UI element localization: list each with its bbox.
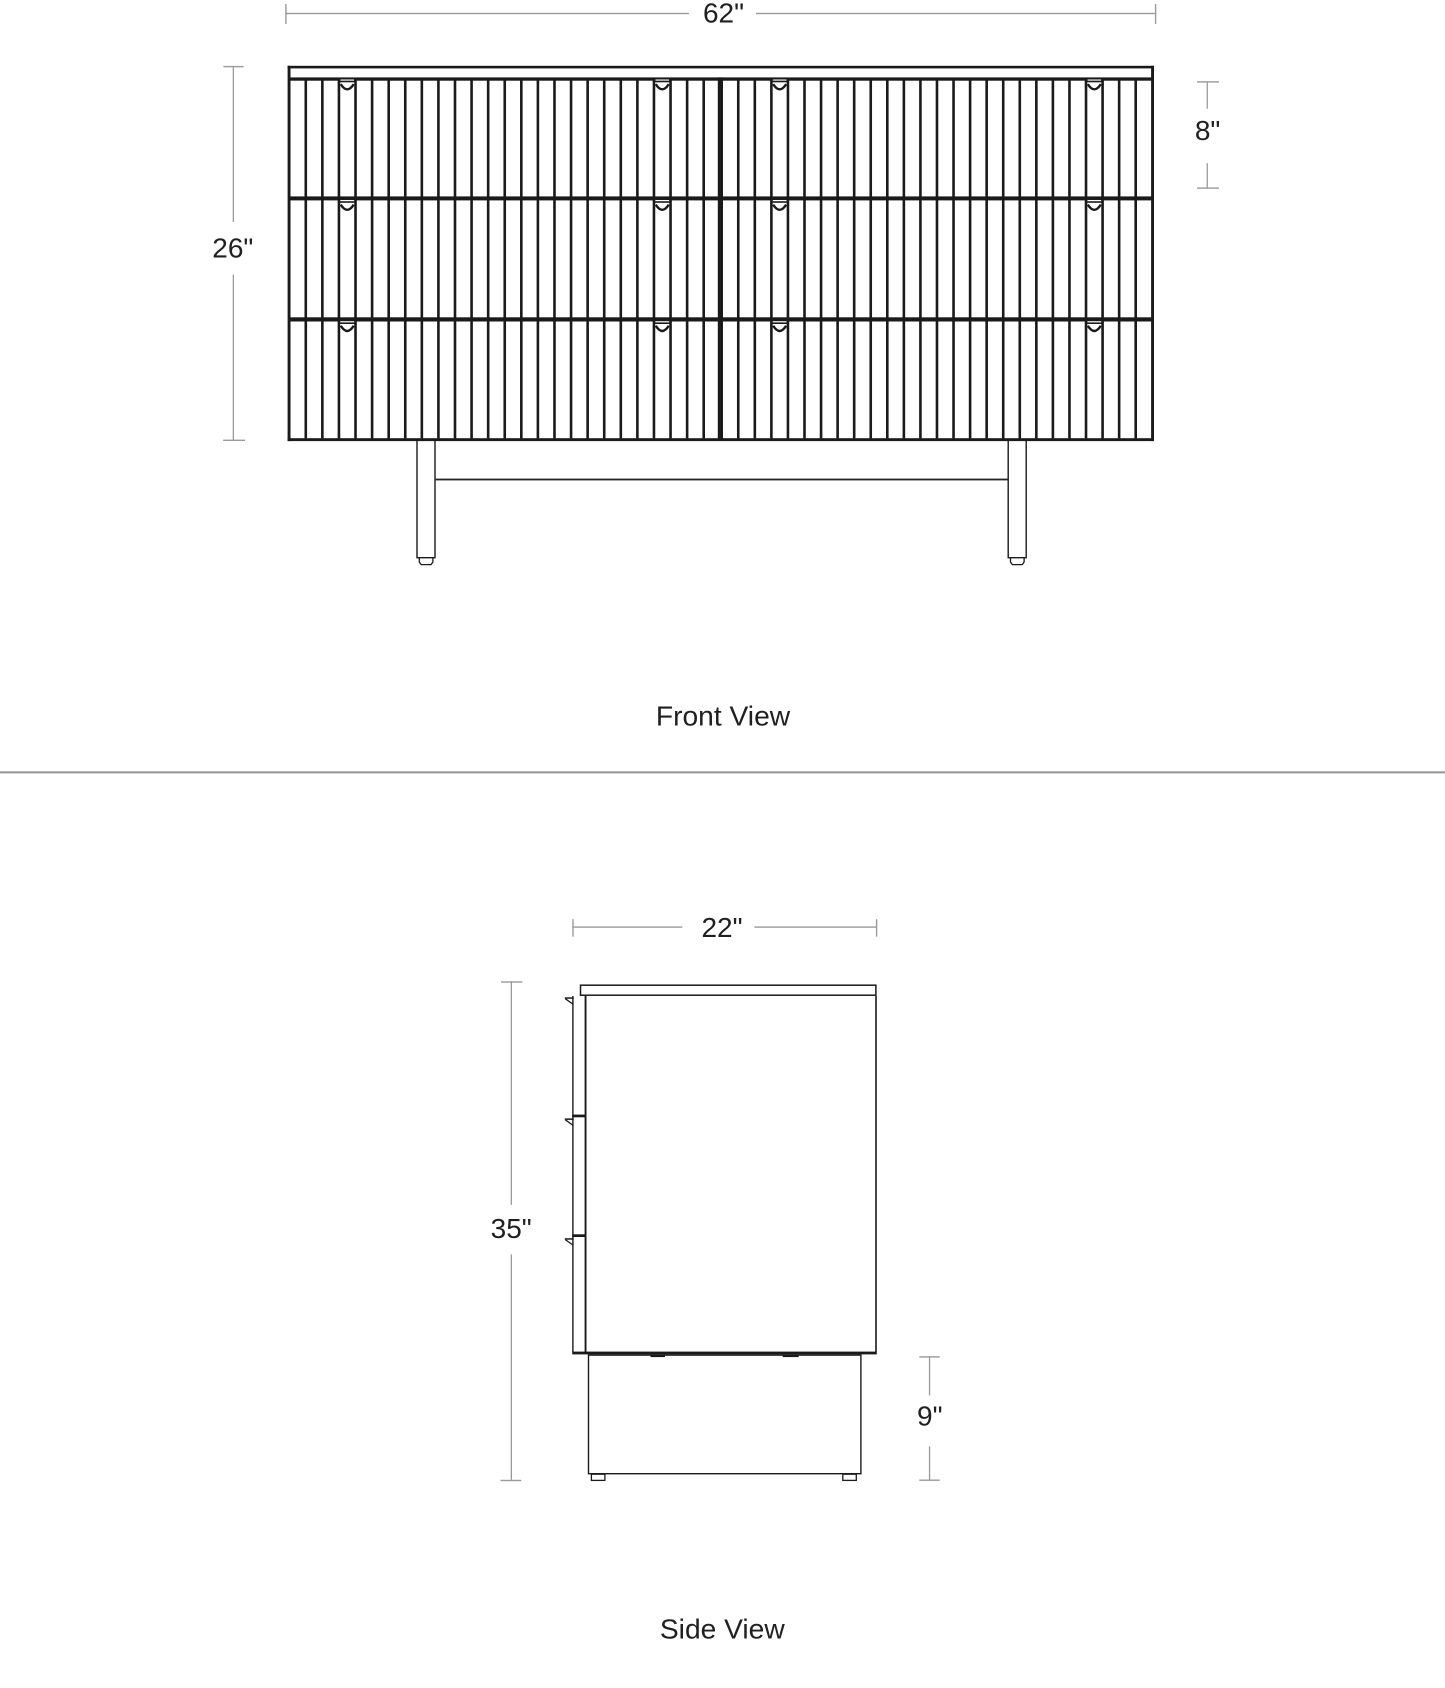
svg-text:Front View: Front View	[656, 699, 791, 731]
svg-text:26": 26"	[212, 233, 253, 264]
svg-text:9": 9"	[917, 1401, 943, 1432]
svg-text:62": 62"	[703, 0, 744, 29]
svg-text:Side View: Side View	[660, 1612, 785, 1644]
svg-text:8": 8"	[1195, 115, 1221, 146]
svg-text:35": 35"	[491, 1213, 532, 1244]
svg-text:22": 22"	[701, 912, 742, 943]
